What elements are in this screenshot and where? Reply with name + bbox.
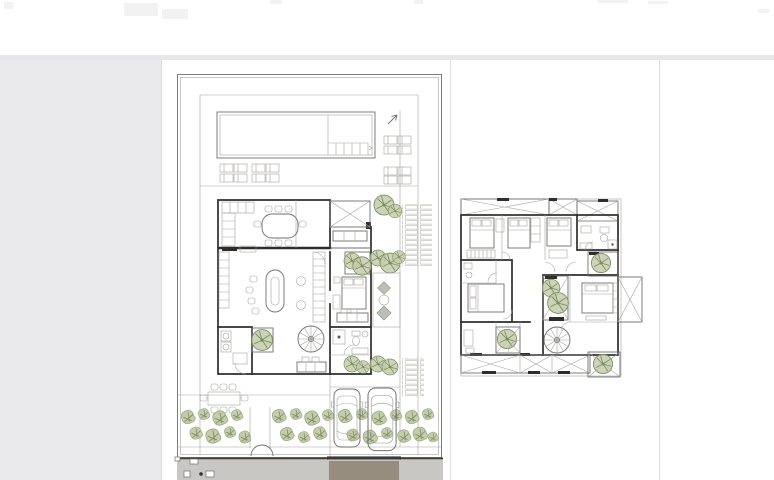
drawing-canvas[interactable] bbox=[0, 0, 774, 480]
street-strip bbox=[175, 456, 443, 480]
spiral-staircase-upper bbox=[544, 327, 570, 353]
spiral-staircase-ground bbox=[298, 326, 324, 352]
canvas-gutter[interactable] bbox=[0, 60, 161, 480]
canvas-top-band bbox=[0, 55, 774, 60]
app-window bbox=[0, 0, 774, 480]
